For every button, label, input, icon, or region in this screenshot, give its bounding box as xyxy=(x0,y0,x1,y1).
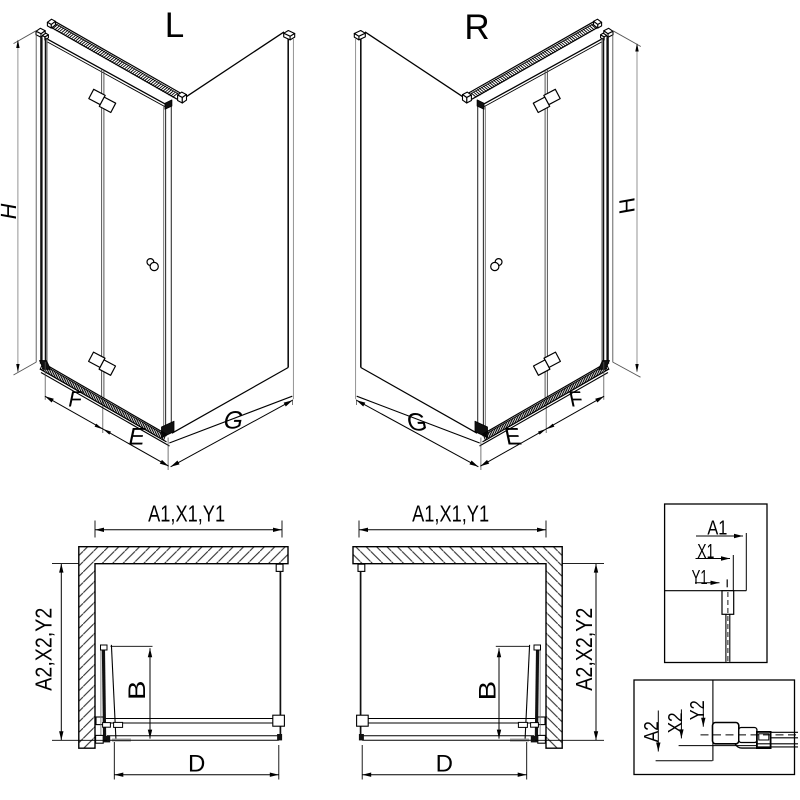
svg-text:L: L xyxy=(165,6,184,45)
svg-text:Y2: Y2 xyxy=(687,700,709,720)
svg-text:D: D xyxy=(436,751,453,778)
svg-text:Y1: Y1 xyxy=(692,567,708,589)
svg-text:A2,X2,Y2: A2,X2,Y2 xyxy=(571,608,597,691)
svg-text:A2,X2,Y2: A2,X2,Y2 xyxy=(31,608,57,691)
svg-text:D: D xyxy=(188,751,205,778)
svg-text:X1: X1 xyxy=(697,541,714,563)
svg-text:A1: A1 xyxy=(707,517,727,539)
svg-text:A2: A2 xyxy=(641,721,663,742)
svg-text:R: R xyxy=(464,8,489,47)
svg-text:X2: X2 xyxy=(665,712,687,733)
svg-text:B: B xyxy=(123,681,150,701)
svg-text:A1,X1,Y1: A1,X1,Y1 xyxy=(412,500,489,526)
svg-text:A1,X1,Y1: A1,X1,Y1 xyxy=(148,500,225,526)
svg-text:B: B xyxy=(474,681,501,701)
